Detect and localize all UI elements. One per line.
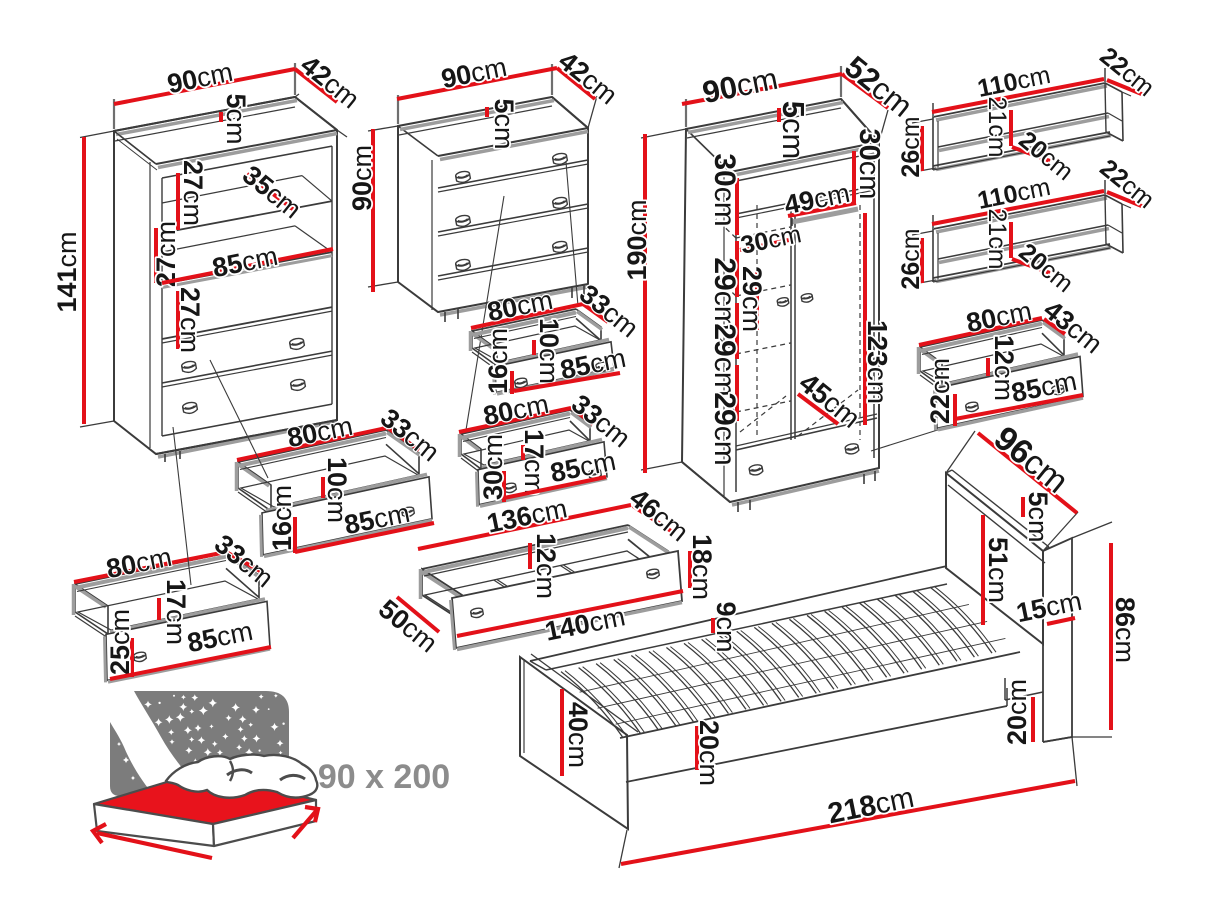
svg-text:5cm: 5cm [221,93,251,144]
svg-text:90cm: 90cm [347,145,377,211]
svg-text:30cm: 30cm [853,129,885,200]
svg-text:190cm: 190cm [622,199,652,280]
svg-text:27cm: 27cm [175,287,205,353]
svg-text:22cm: 22cm [925,358,955,424]
svg-text:30cm: 30cm [709,153,742,226]
svg-text:20cm: 20cm [694,720,724,786]
svg-text:51cm: 51cm [983,537,1013,603]
svg-text:27cm: 27cm [178,160,208,226]
svg-text:21cm: 21cm [983,96,1011,157]
svg-text:27cm: 27cm [151,221,181,287]
svg-text:5cm: 5cm [777,101,812,160]
svg-text:20cm: 20cm [1002,679,1032,745]
svg-text:30cm: 30cm [478,434,508,500]
svg-text:16cm: 16cm [267,485,297,551]
svg-text:29cm: 29cm [737,266,767,332]
svg-text:40cm: 40cm [563,702,593,768]
svg-text:123cm: 123cm [863,320,894,404]
svg-text:5cm: 5cm [1023,491,1053,542]
svg-text:18cm: 18cm [687,534,717,600]
svg-text:17cm: 17cm [519,429,549,495]
svg-text:5cm: 5cm [489,98,519,149]
svg-text:141cm: 141cm [52,231,82,312]
svg-text:25cm: 25cm [105,609,135,675]
svg-text:29cm: 29cm [709,392,742,465]
svg-text:26cm: 26cm [897,228,925,289]
svg-text:90 x 200: 90 x 200 [318,758,450,796]
svg-text:9cm: 9cm [711,601,741,652]
svg-text:21cm: 21cm [983,208,1011,269]
svg-text:10cm: 10cm [534,318,564,384]
svg-text:86cm: 86cm [1110,597,1140,663]
svg-text:12cm: 12cm [531,533,561,599]
svg-text:16cm: 16cm [483,328,513,394]
svg-text:26cm: 26cm [897,116,925,177]
